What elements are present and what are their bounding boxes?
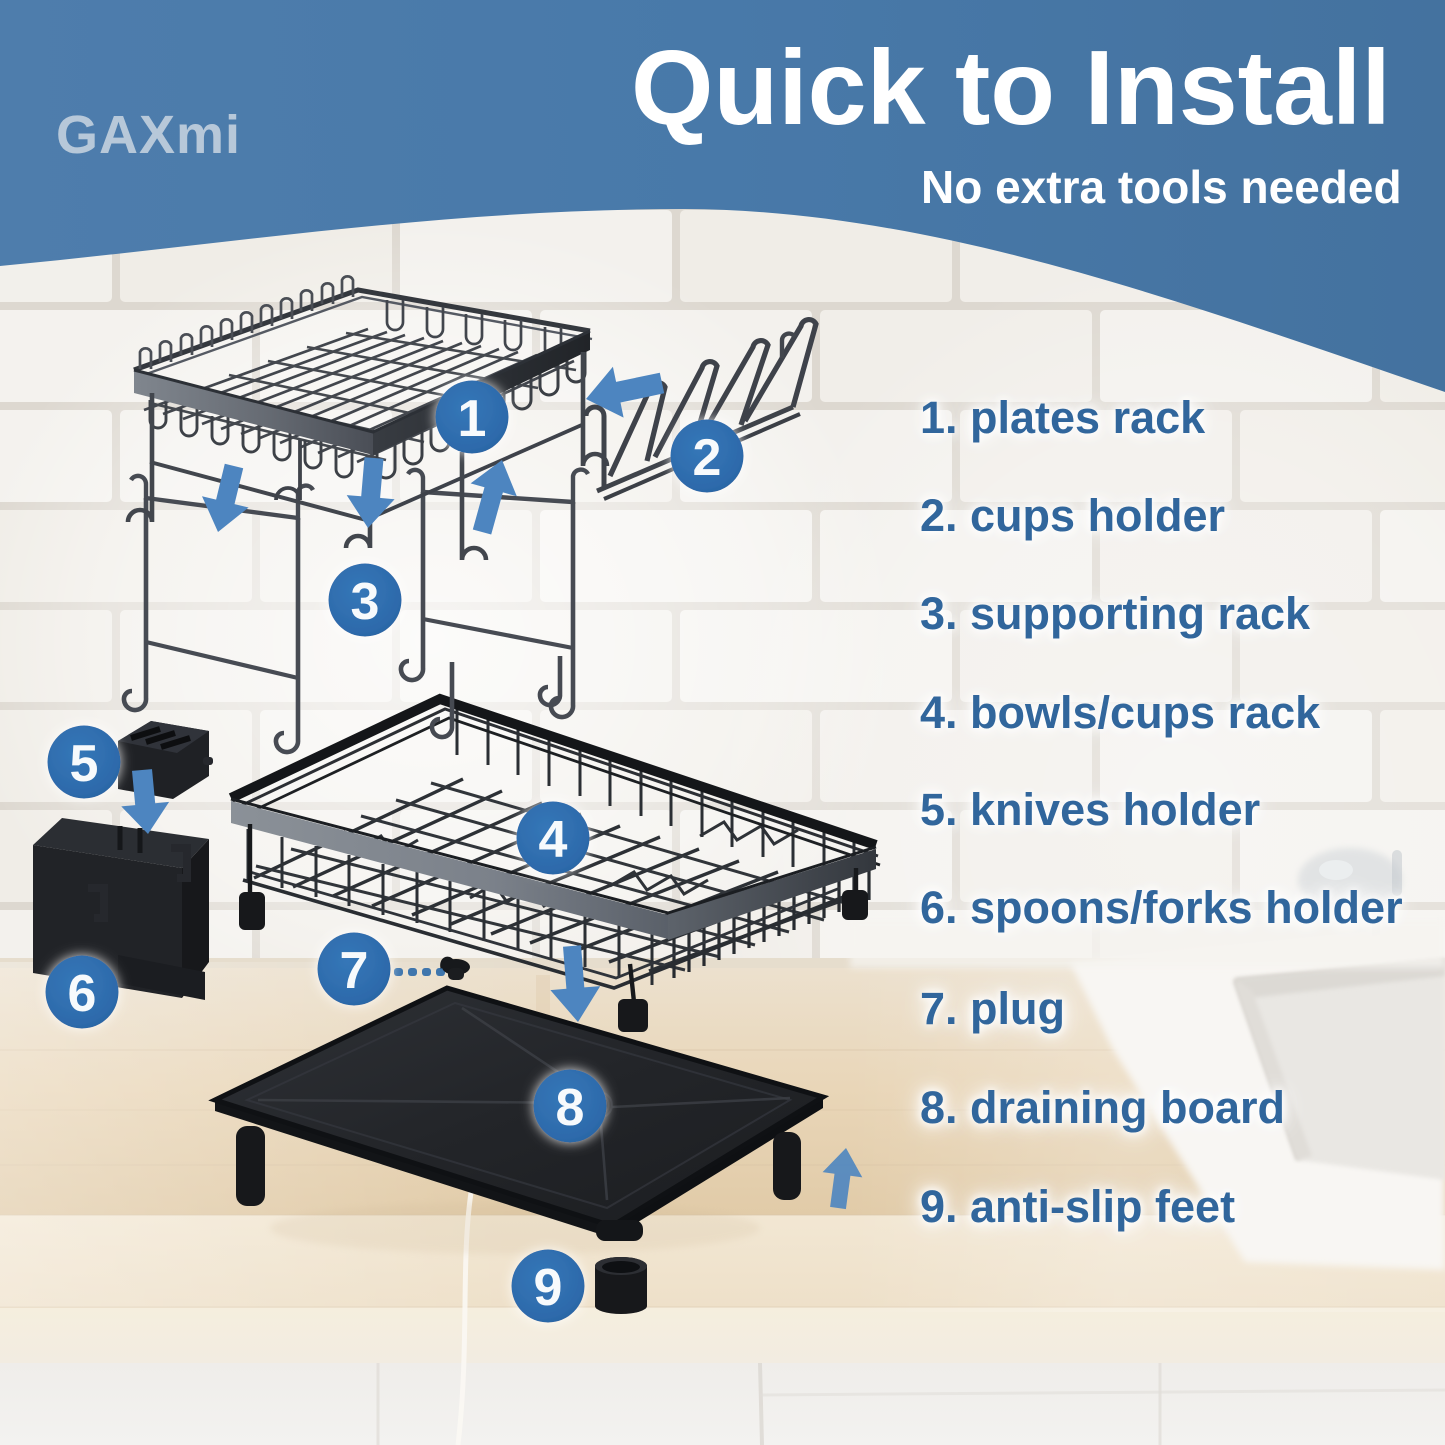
svg-text:5: 5 bbox=[70, 735, 99, 793]
svg-text:6: 6 bbox=[68, 965, 97, 1023]
svg-text:4: 4 bbox=[539, 811, 568, 869]
svg-text:7: 7 bbox=[340, 942, 369, 1000]
svg-text:2: 2 bbox=[693, 429, 722, 487]
svg-text:3: 3 bbox=[351, 573, 380, 631]
svg-text:1: 1 bbox=[458, 390, 487, 448]
svg-text:8: 8 bbox=[556, 1079, 585, 1137]
svg-text:9: 9 bbox=[534, 1259, 563, 1317]
